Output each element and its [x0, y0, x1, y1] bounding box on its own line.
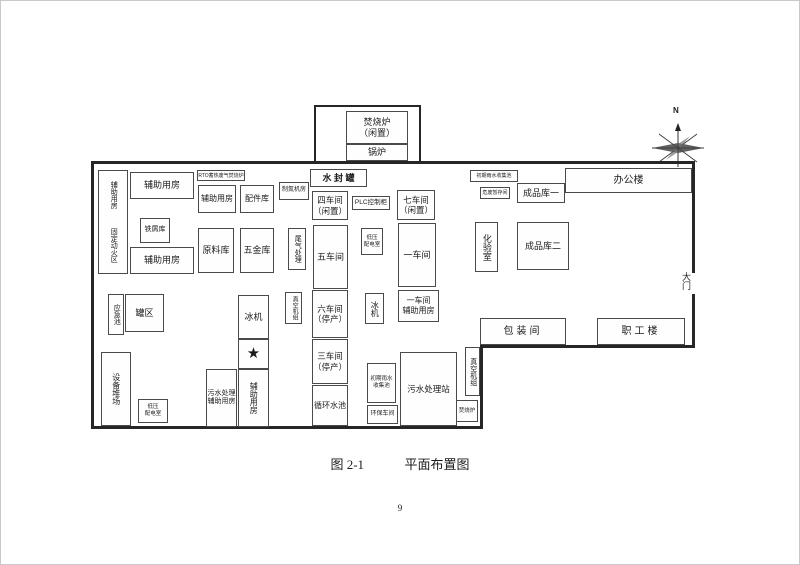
workshop3-stopped: 三车间 （停产）: [312, 339, 348, 384]
boundary-top: [91, 161, 695, 164]
rainwater-pool-top: 初期雨水收集池: [470, 170, 518, 182]
workshop4-idle: 四车间 （闲置）: [312, 191, 348, 220]
office-building: 办公楼: [565, 168, 692, 193]
boundary-notch-horizontal: [480, 345, 695, 348]
lab: 化验室: [475, 222, 498, 272]
workshop7-idle: 七车间 （闲置）: [397, 190, 435, 220]
star-room: ★: [238, 339, 269, 369]
workshop1-aux: 一车间 辅助用房: [398, 290, 439, 322]
incinerator-small: 焚烧炉: [456, 400, 478, 422]
nitrogen-room: 制氮机房: [279, 182, 309, 200]
aux-room-bottom: 辅助用房: [130, 247, 194, 274]
workshop6-stopped: 六车间 （停产）: [312, 290, 348, 338]
vacuum-unit-left: 真空机组: [285, 292, 302, 324]
sewage-aux-room: 污水处理 辅助用房: [206, 369, 237, 427]
scrap-store: 铁屑库: [140, 218, 170, 243]
aux-left-and-fire-zone: 辅助用房 固定动火区: [98, 170, 128, 274]
packing-room: 包装间: [480, 318, 566, 345]
figure-caption: 图 2-1 平面布置图: [1, 454, 799, 473]
figure-number: 图 2-1: [330, 457, 364, 472]
boundary-notch-vertical: [480, 345, 483, 429]
workshop1: 一车间: [398, 223, 436, 287]
boundary-bottom: [91, 426, 482, 429]
circulating-pool: 循环水池: [312, 385, 348, 426]
aux-room-left-label: 辅助用房: [109, 181, 117, 209]
water-seal-tank: 水 封 罐: [310, 169, 367, 187]
boiler: 锅炉: [346, 144, 408, 161]
sewage-station: 污水处理站: [400, 352, 457, 426]
figure-title: 平面布置图: [405, 457, 470, 472]
fixed-fire-zone-label: 固定动火区: [109, 228, 117, 263]
tank-area: 罐区: [125, 294, 164, 332]
document-page: N 焚烧炉 （闲置） 锅炉 水 封 罐 辅助用房 固定动火区 辅助用房 铁屑库 …: [0, 0, 800, 565]
ice-machine-left: 冰机: [238, 295, 269, 339]
boundary-right-upper: [692, 161, 695, 273]
ice-machine-mid: 冰机: [365, 293, 384, 324]
raw-material-store: 原料库: [198, 228, 234, 273]
aux-room-top: 辅助用房: [130, 172, 194, 199]
vacuum-unit-right: 真空机组: [465, 347, 480, 396]
parts-store: 配件库: [240, 185, 274, 213]
boundary-left: [91, 161, 94, 429]
aux-room-star: 辅助用房: [238, 369, 269, 427]
boundary-right-lower: [692, 294, 695, 347]
page-number: 9: [1, 503, 799, 513]
staff-building: 职工楼: [597, 318, 685, 345]
hardware-store: 五金库: [240, 228, 274, 273]
equipment-yard: 设备堆场: [101, 352, 131, 426]
north-label: N: [673, 106, 679, 115]
incinerator-idle: 焚烧炉 （闲置）: [346, 111, 408, 144]
finished-store1: 成品库一: [517, 183, 565, 203]
rainwater-pool-mid: 初期雨水 收集池: [367, 363, 396, 403]
lv-power-room-2: 低压 配电室: [138, 399, 168, 423]
plc-cabinet: PLC控制柜: [352, 196, 390, 210]
finished-store2: 成品库二: [517, 222, 569, 270]
env-room: 环保车间: [367, 405, 398, 424]
hazwaste-store: 危废暂存间: [480, 187, 510, 199]
tail-gas-treatment: 尾气处理: [288, 228, 306, 270]
lv-power-room: 低压 配电室: [361, 228, 383, 255]
emergency-pool: 应急池: [108, 294, 124, 335]
rto-unit: RTO蓄热废气焚烧炉: [197, 170, 245, 181]
workshop5: 五车间: [313, 225, 348, 289]
aux-room-mid: 辅助用房: [198, 185, 236, 213]
gate-label: 大门: [680, 272, 693, 290]
